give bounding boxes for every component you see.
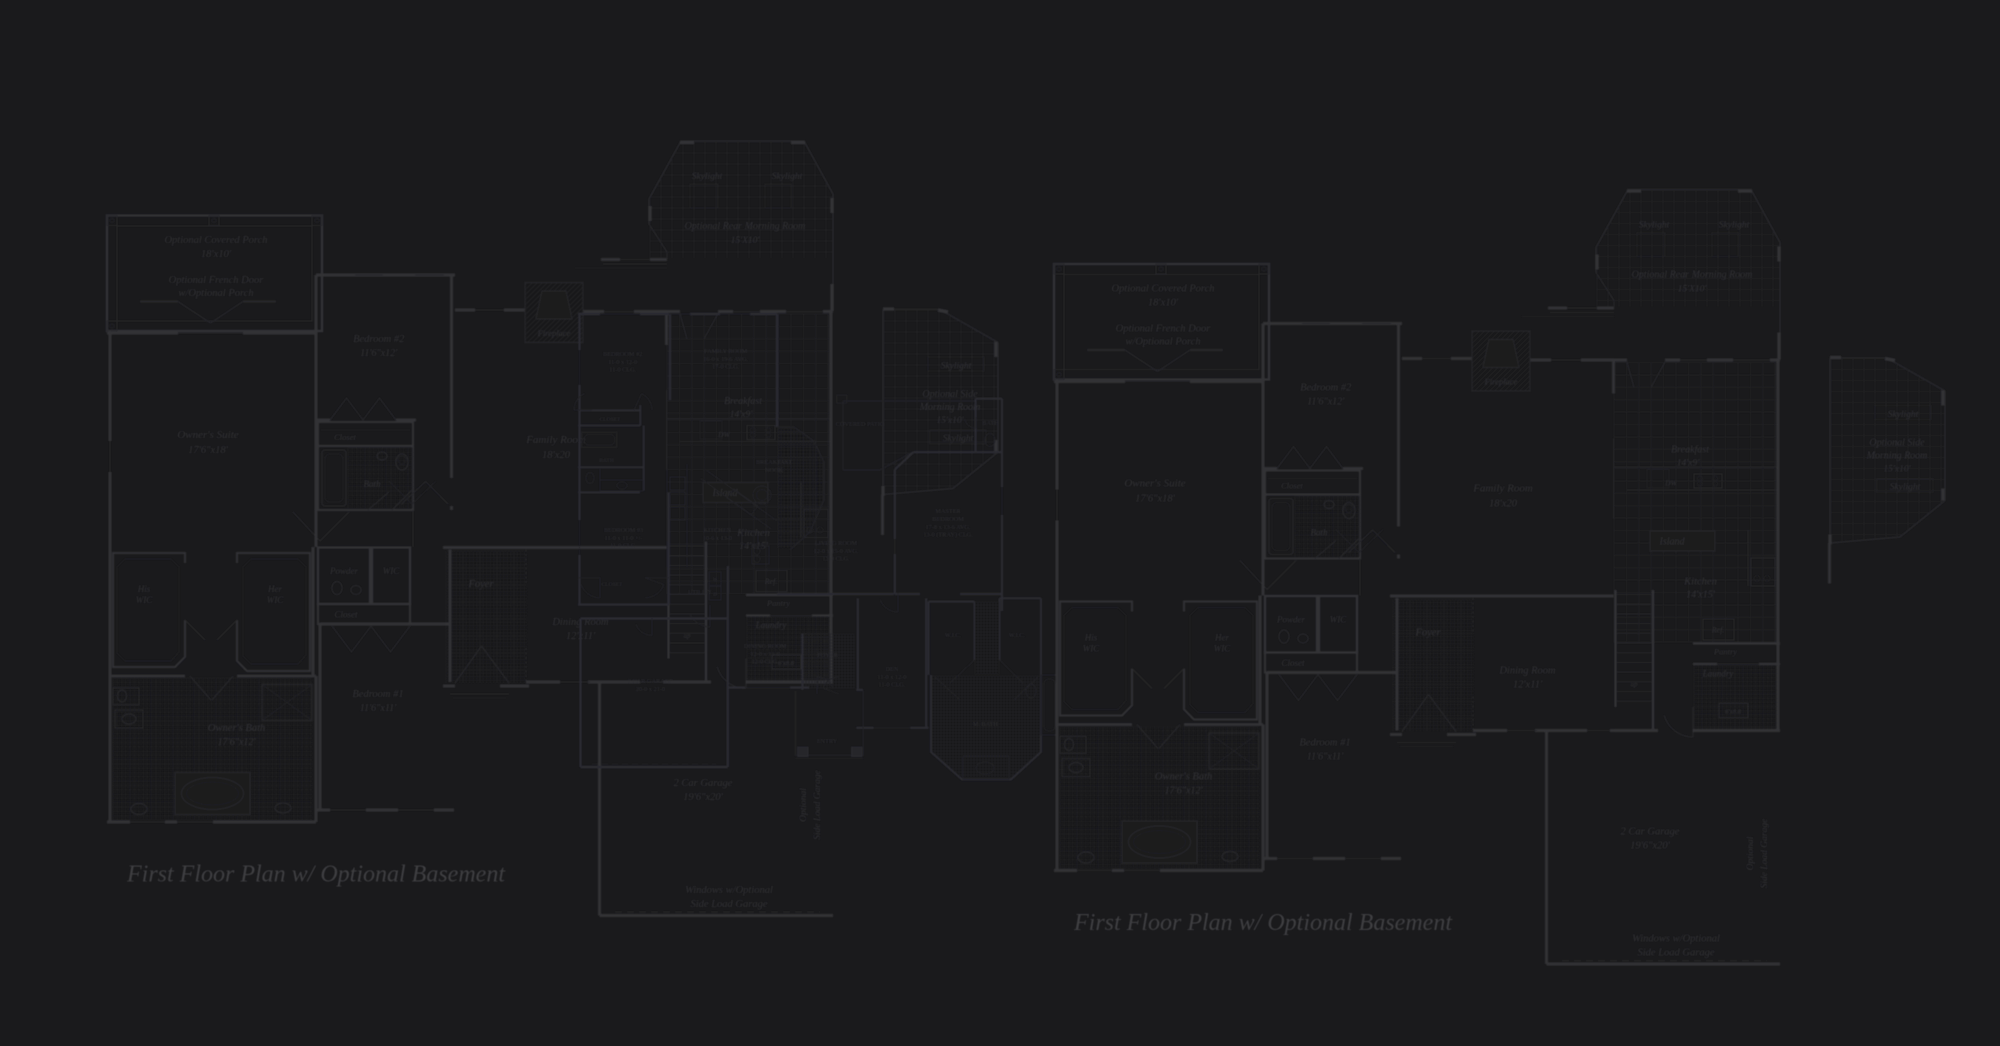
svg-text:15'X10': 15'X10' — [1678, 285, 1708, 295]
svg-text:Optional Covered Porch: Optional Covered Porch — [164, 235, 267, 246]
svg-text:Owner's Bath: Owner's Bath — [208, 723, 265, 734]
svg-text:Bedroom #1: Bedroom #1 — [1299, 738, 1350, 749]
svg-text:18'x10': 18'x10' — [1148, 298, 1179, 309]
svg-text:Closet: Closet — [1281, 481, 1303, 491]
svg-text:MASTER: MASTER — [935, 508, 961, 515]
svg-text:BEDROOM #3: BEDROOM #3 — [604, 527, 643, 534]
svg-text:Ref.: Ref. — [1711, 626, 1725, 635]
svg-text:17'6"x18': 17'6"x18' — [188, 445, 229, 456]
svg-text:DINING ROOM: DINING ROOM — [744, 643, 787, 650]
svg-text:BEDROOM #2: BEDROOM #2 — [603, 351, 642, 358]
svg-text:15'X10': 15'X10' — [731, 236, 761, 246]
svg-text:Optional: Optional — [1746, 836, 1756, 870]
svg-text:CLOSET: CLOSET — [602, 582, 623, 588]
svg-text:Powder: Powder — [329, 566, 358, 576]
svg-text:Bedroom #1: Bedroom #1 — [352, 689, 403, 700]
svg-text:WIC: WIC — [383, 566, 400, 576]
svg-text:2 CAR GARAGE: 2 CAR GARAGE — [628, 678, 674, 685]
svg-text:11-0 x 11-0 +/-: 11-0 x 11-0 +/- — [605, 535, 643, 542]
svg-text:Foyer: Foyer — [467, 579, 494, 590]
svg-text:Owner's Suite: Owner's Suite — [1124, 478, 1185, 490]
svg-text:Island: Island — [1659, 537, 1686, 548]
svg-text:Optional Side: Optional Side — [922, 389, 978, 400]
svg-text:6'x8.8: 6'x8.8 — [1725, 709, 1741, 716]
svg-text:Bedroom #2: Bedroom #2 — [353, 334, 405, 345]
svg-text:15'x10': 15'x10' — [936, 416, 964, 426]
svg-text:WIC: WIC — [136, 595, 153, 605]
svg-text:Pantry: Pantry — [766, 598, 790, 608]
svg-text:Windows w/Optional: Windows w/Optional — [1632, 934, 1720, 945]
svg-text:Morning Room: Morning Room — [919, 402, 981, 413]
svg-text:DEN: DEN — [885, 666, 898, 673]
svg-text:Skylight: Skylight — [1890, 483, 1921, 493]
svg-text:BEDROOM: BEDROOM — [932, 516, 964, 523]
svg-text:WIC: WIC — [1214, 644, 1231, 654]
svg-text:up: up — [1631, 681, 1639, 689]
svg-text:17-0 CLG.: 17-0 CLG. — [712, 364, 740, 371]
svg-text:His: His — [1084, 633, 1098, 643]
svg-text:Side Load Garage: Side Load Garage — [1638, 948, 1715, 959]
svg-text:WIC: WIC — [267, 595, 284, 605]
svg-text:Skylight: Skylight — [772, 172, 803, 182]
svg-text:13-0 (TRAY) CLG.: 13-0 (TRAY) CLG. — [923, 532, 973, 539]
svg-text:W: W — [713, 578, 718, 583]
svg-text:Side Load Garage: Side Load Garage — [691, 899, 768, 910]
svg-text:DW: DW — [717, 430, 730, 439]
svg-text:Her: Her — [267, 584, 282, 594]
svg-text:20-0 x 21-0: 20-0 x 21-0 — [636, 686, 665, 693]
svg-text:17-8 x 13-6 AVG.: 17-8 x 13-6 AVG. — [925, 524, 970, 531]
svg-text:11'6"x11': 11'6"x11' — [360, 703, 397, 714]
svg-text:w/Optional Porch: w/Optional Porch — [1125, 337, 1200, 348]
svg-text:His: His — [137, 584, 151, 594]
svg-text:M. BATH: M. BATH — [973, 721, 999, 728]
svg-text:First Floor Plan w/ Optional: First Floor Plan w/ Optional Basement — [1073, 910, 1453, 936]
svg-text:Closet: Closet — [1281, 658, 1305, 668]
svg-text:WIC: WIC — [1330, 615, 1347, 625]
svg-text:Side Load Garage: Side Load Garage — [1760, 819, 1770, 889]
svg-text:Pantry: Pantry — [1713, 647, 1737, 657]
svg-text:10-6 x 13-0: 10-6 x 13-0 — [703, 535, 732, 542]
svg-text:KITCHEN: KITCHEN — [704, 527, 732, 534]
svg-text:Skylight: Skylight — [1888, 410, 1919, 420]
svg-text:Bath: Bath — [1311, 528, 1328, 538]
svg-text:Breakfast: Breakfast — [1671, 445, 1709, 456]
svg-text:Optional Rear Morning Room: Optional Rear Morning Room — [685, 221, 806, 232]
svg-text:11'6"x12': 11'6"x12' — [360, 348, 398, 359]
svg-text:WIC: WIC — [1083, 644, 1100, 654]
svg-text:BATH: BATH — [599, 458, 613, 464]
svg-text:up: up — [684, 632, 692, 640]
svg-text:Powder: Powder — [1276, 615, 1305, 625]
svg-text:BREAKFAST: BREAKFAST — [756, 459, 792, 466]
svg-text:Owner's Suite: Owner's Suite — [177, 429, 238, 441]
svg-text:Skylight: Skylight — [941, 362, 972, 372]
svg-text:Closet: Closet — [334, 610, 358, 620]
svg-text:Optional French Door: Optional French Door — [1116, 324, 1212, 335]
svg-text:19'6"x20': 19'6"x20' — [683, 792, 724, 803]
svg-text:ENTRY: ENTRY — [817, 738, 838, 745]
svg-text:11-0 CLG.: 11-0 CLG. — [878, 682, 905, 689]
svg-text:D: D — [713, 593, 717, 598]
svg-text:NOOK: NOOK — [765, 467, 784, 474]
svg-text:2 Car Garage: 2 Car Garage — [1621, 827, 1680, 838]
svg-text:11-0 CLG.: 11-0 CLG. — [609, 367, 636, 374]
svg-text:18'x20: 18'x20 — [1489, 499, 1518, 510]
svg-text:Skylight: Skylight — [943, 434, 974, 444]
svg-text:14'x15': 14'x15' — [1686, 590, 1716, 601]
svg-text:Fireplace: Fireplace — [1484, 377, 1518, 387]
svg-text:Bedroom #2: Bedroom #2 — [1300, 383, 1352, 394]
svg-text:Dining Room: Dining Room — [1498, 666, 1556, 677]
svg-text:FAMILY ROOM: FAMILY ROOM — [704, 348, 748, 355]
svg-text:First Floor Plan w/ Optional: First Floor Plan w/ Optional Basement — [126, 862, 506, 888]
svg-text:12'x11': 12'x11' — [1513, 680, 1543, 691]
svg-text:Ref.: Ref. — [764, 577, 778, 586]
svg-text:BATH: BATH — [982, 420, 999, 427]
svg-text:12-0 CLG.: 12-0 CLG. — [751, 659, 779, 666]
svg-text:UTILITY: UTILITY — [688, 590, 712, 596]
svg-text:6'x8.8: 6'x8.8 — [778, 660, 794, 667]
svg-text:Windows w/Optional: Windows w/Optional — [685, 885, 773, 896]
svg-text:17'6"x18': 17'6"x18' — [1135, 494, 1176, 505]
svg-text:Fireplace: Fireplace — [537, 328, 571, 338]
svg-text:Optional Side: Optional Side — [1869, 438, 1925, 449]
svg-text:Foyer: Foyer — [1414, 628, 1441, 639]
svg-text:11-0 CLG.: 11-0 CLG. — [610, 543, 637, 550]
svg-text:w/Optional Porch: w/Optional Porch — [178, 288, 253, 299]
svg-text:Breakfast: Breakfast — [724, 396, 762, 407]
svg-text:Owner's Bath: Owner's Bath — [1155, 772, 1212, 783]
svg-text:12-0 x 13-0: 12-0 x 13-0 — [750, 651, 779, 658]
svg-text:19'6"x20': 19'6"x20' — [1630, 841, 1671, 852]
svg-text:Family Room: Family Room — [1472, 483, 1533, 495]
svg-text:COVERED PATIO: COVERED PATIO — [836, 421, 885, 428]
svg-text:17'6"x12': 17'6"x12' — [218, 737, 257, 748]
svg-text:Kitchen: Kitchen — [1683, 577, 1717, 588]
svg-text:11'6"x11': 11'6"x11' — [1307, 752, 1344, 763]
svg-text:11-0 x 12-0: 11-0 x 12-0 — [877, 674, 906, 681]
svg-text:FOYER: FOYER — [817, 652, 838, 659]
svg-text:Laundry: Laundry — [755, 620, 787, 630]
svg-text:Optional Rear Morning Room: Optional Rear Morning Room — [1632, 270, 1753, 281]
svg-text:11'6"x12': 11'6"x12' — [1307, 397, 1345, 408]
svg-text:W.I.C.: W.I.C. — [945, 632, 962, 639]
svg-text:Side Load Garage: Side Load Garage — [813, 770, 823, 840]
svg-text:Skylight: Skylight — [1639, 221, 1670, 231]
svg-text:Skylight: Skylight — [1719, 221, 1750, 231]
svg-text:Optional French Door: Optional French Door — [169, 275, 265, 286]
svg-text:12-0 x 15-0 AVG.: 12-0 x 15-0 AVG. — [813, 548, 858, 555]
svg-text:17'6"x12': 17'6"x12' — [1165, 786, 1204, 797]
svg-text:Her: Her — [1214, 633, 1229, 643]
svg-text:W.I.C.: W.I.C. — [1009, 632, 1026, 639]
svg-text:Family Room: Family Room — [525, 434, 586, 446]
svg-text:Morning Room: Morning Room — [1866, 451, 1928, 462]
svg-text:LIVING ROOM: LIVING ROOM — [815, 540, 858, 547]
svg-text:11-0 x 12-0: 11-0 x 12-0 — [608, 359, 637, 366]
svg-text:Bath: Bath — [364, 479, 381, 489]
svg-text:18'x10': 18'x10' — [201, 249, 232, 260]
svg-text:Optional: Optional — [799, 788, 809, 822]
svg-text:16-0 x 19-6 AVG.: 16-0 x 19-6 AVG. — [703, 356, 748, 363]
svg-text:13-0 CLG.: 13-0 CLG. — [822, 556, 850, 563]
svg-text:Optional Covered Porch: Optional Covered Porch — [1111, 284, 1214, 295]
svg-text:DW: DW — [1664, 479, 1677, 488]
svg-text:15'x10': 15'x10' — [1883, 465, 1911, 475]
svg-text:Laundry: Laundry — [1702, 669, 1734, 679]
svg-text:18'x20: 18'x20 — [542, 450, 571, 461]
svg-text:Kitchen: Kitchen — [736, 528, 770, 539]
svg-text:Closet: Closet — [334, 432, 356, 442]
svg-text:CLOSET: CLOSET — [600, 417, 621, 423]
svg-text:Skylight: Skylight — [692, 172, 723, 182]
svg-text:2 Car Garage: 2 Car Garage — [674, 778, 733, 789]
